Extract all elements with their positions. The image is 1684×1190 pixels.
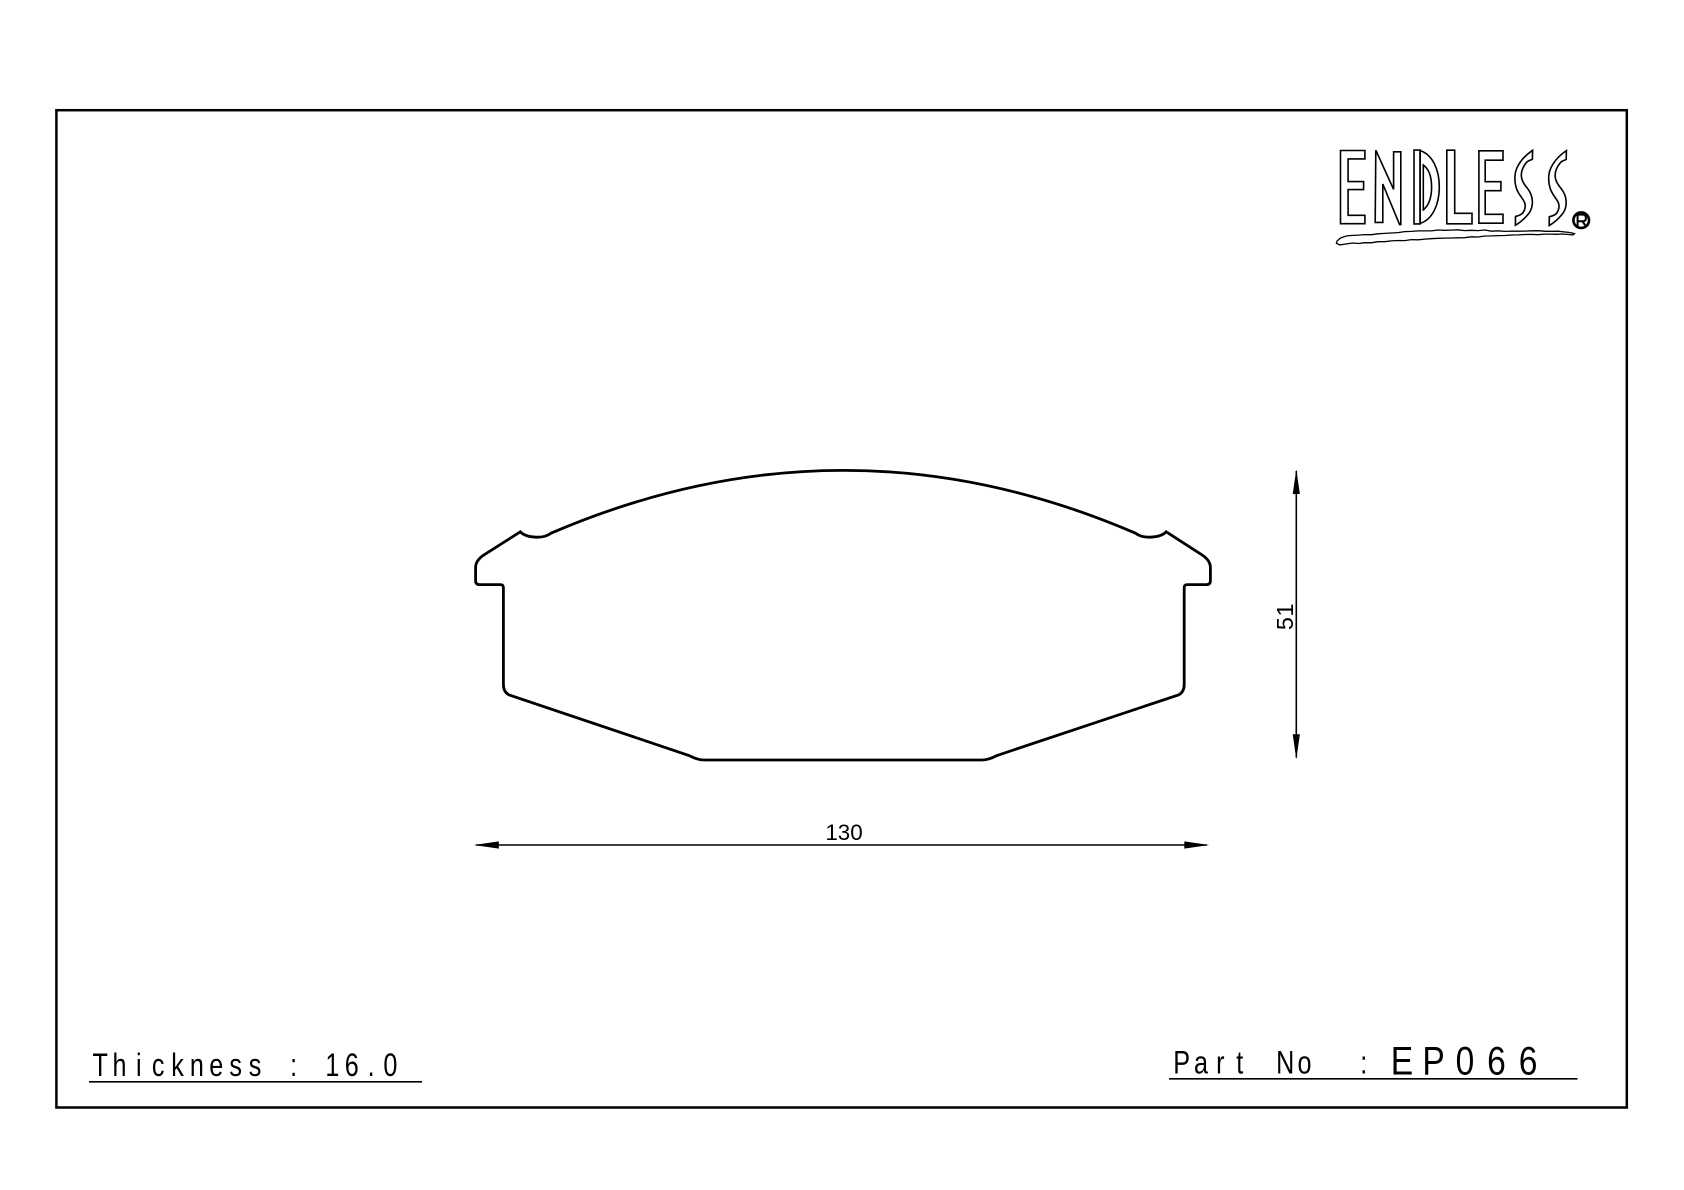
- svg-text:130: 130: [825, 820, 862, 845]
- svg-text:51: 51: [1272, 603, 1298, 630]
